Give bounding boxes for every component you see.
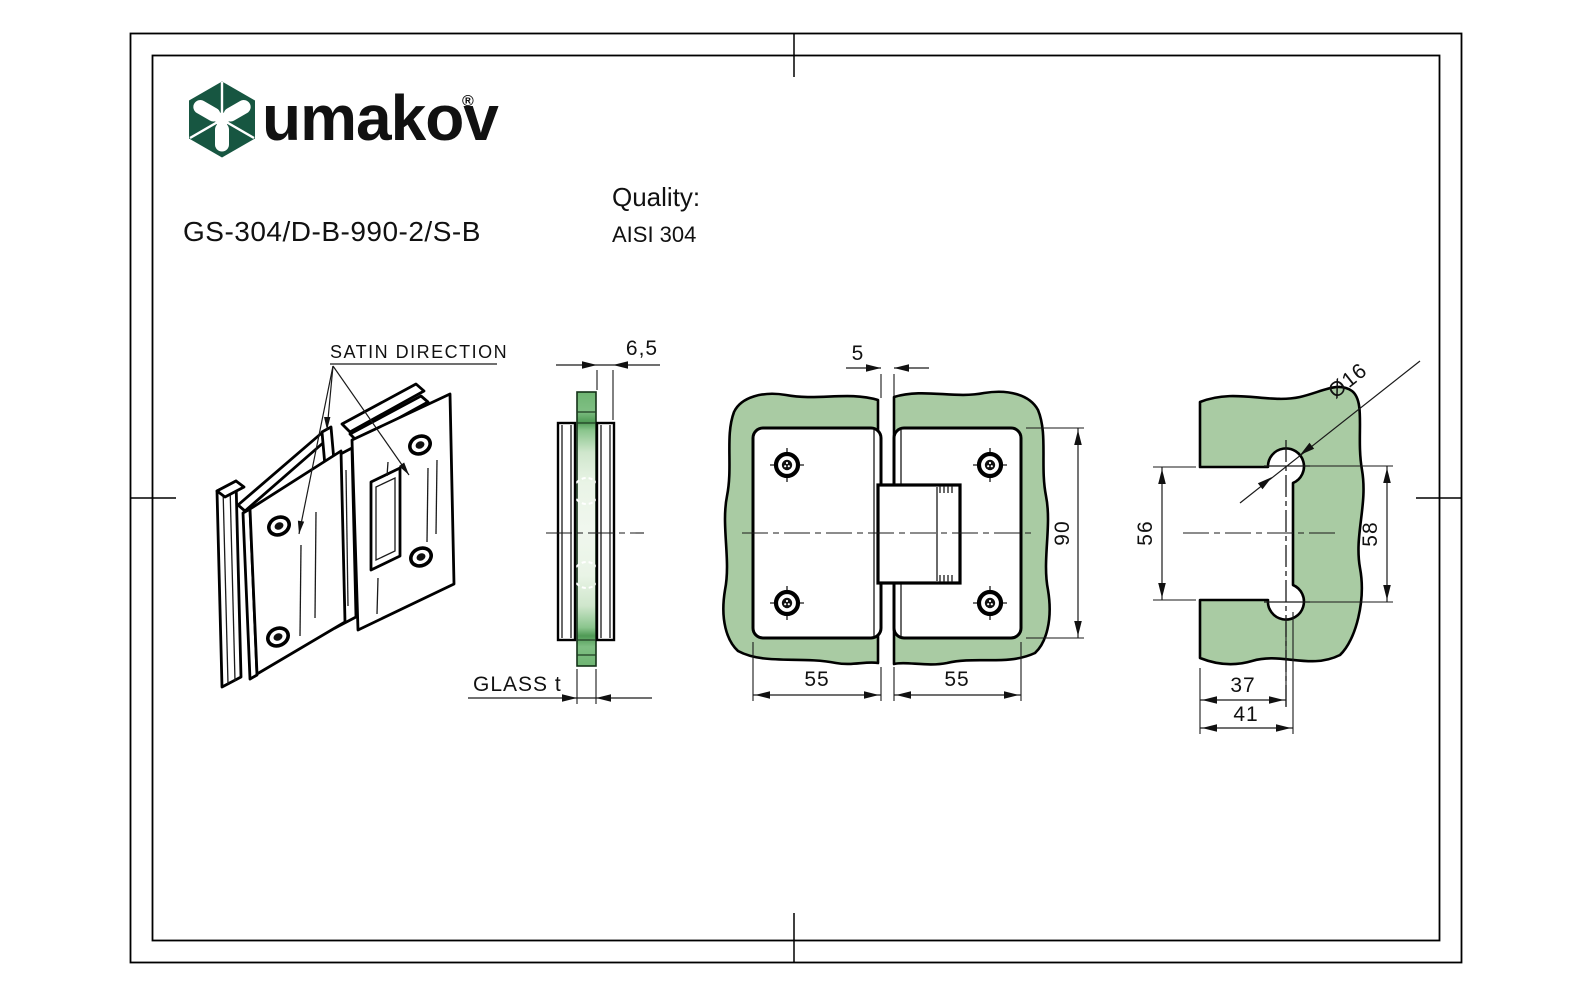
- dim-90-text: 90: [1051, 520, 1074, 545]
- satin-direction-label: SATIN DIRECTION: [330, 342, 508, 362]
- template-glass: [1200, 387, 1364, 664]
- drawing-sheet: umakov ® GS-304/D-B-990-2/S-B Quality: A…: [0, 0, 1590, 997]
- dim-hinge-thickness: 6,5: [556, 337, 660, 420]
- dim-55-right-text: 55: [944, 668, 969, 691]
- glass-edge-strip: [577, 392, 596, 666]
- title-block: GS-304/D-B-990-2/S-B Quality: AISI 304: [183, 182, 700, 247]
- dim-55-left-text: 55: [804, 668, 829, 691]
- drawing-canvas: umakov ® GS-304/D-B-990-2/S-B Quality: A…: [0, 0, 1590, 997]
- logo: umakov ®: [189, 82, 499, 158]
- dim-58-text: 58: [1359, 521, 1382, 546]
- left-leaf-edge: [558, 423, 575, 640]
- dim-56-text: 56: [1134, 520, 1157, 545]
- dim-5-text: 5: [852, 342, 865, 365]
- glass-t-label: GLASS t: [473, 673, 562, 696]
- dim-glass-thickness: GLASS t: [468, 669, 652, 704]
- dim-glass-gap: 5: [846, 342, 929, 398]
- registered-mark: ®: [462, 93, 474, 110]
- glass-edge-slab: [217, 481, 241, 687]
- dim-6-5-text: 6,5: [626, 337, 658, 360]
- part-number: GS-304/D-B-990-2/S-B: [183, 216, 481, 247]
- view-side-section: 6,5 GLASS t: [468, 337, 660, 704]
- view-drilling-template: Ø16 56 58 37: [1134, 359, 1420, 734]
- view-front: 5 90 55 55: [723, 342, 1084, 701]
- dim-41-text: 41: [1233, 703, 1258, 726]
- view-isometric: SATIN DIRECTION: [217, 342, 508, 687]
- right-leaf-edge: [597, 423, 614, 640]
- glass-slab-top-face: [217, 481, 244, 497]
- quality-value: AISI 304: [612, 222, 696, 247]
- front-knuckle: [878, 485, 960, 583]
- dim-37-text: 37: [1230, 674, 1255, 697]
- quality-label: Quality:: [612, 182, 700, 212]
